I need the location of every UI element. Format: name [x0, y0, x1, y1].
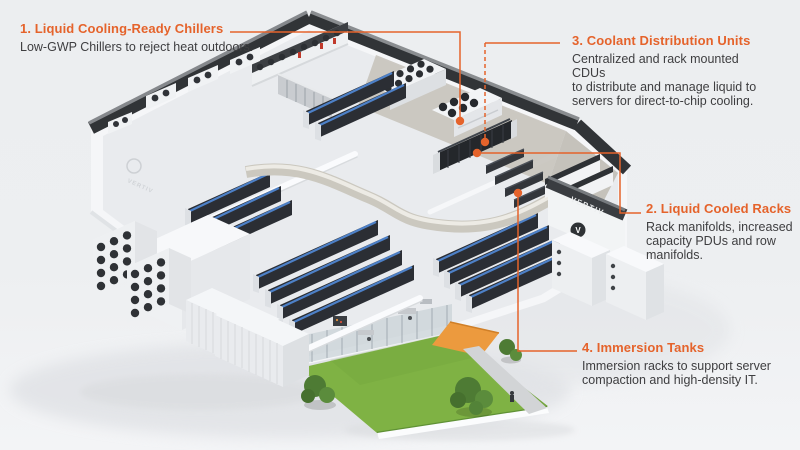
- annotation-immersion-desc: Immersion racks to support server compac…: [582, 359, 777, 387]
- annotation-racks: 2. Liquid Cooled Racks Rack manifolds, i…: [646, 201, 800, 262]
- annotation-immersion: 4. Immersion Tanks Immersion racks to su…: [582, 340, 777, 387]
- person-figure: [510, 391, 514, 395]
- annotation-racks-desc: Rack manifolds, increased capacity PDUs …: [646, 220, 800, 262]
- annotation-immersion-title: 4. Immersion Tanks: [582, 340, 777, 355]
- connector-dot-2: [473, 149, 481, 157]
- brand-logo-letter: V: [575, 226, 581, 235]
- annotation-cdu: 3. Coolant Distribution Units Centralize…: [572, 33, 772, 108]
- annotation-chillers-desc: Low-GWP Chillers to reject heat outdoors…: [20, 40, 280, 54]
- connector-dot-4: [514, 189, 522, 197]
- connector-dot-1: [456, 117, 464, 125]
- connector-dot-3: [481, 138, 489, 146]
- annotation-cdu-desc: Centralized and rack mounted CDUs to dis…: [572, 52, 772, 108]
- annotation-chillers-title: 1. Liquid Cooling-Ready Chillers: [20, 21, 280, 36]
- annotation-racks-title: 2. Liquid Cooled Racks: [646, 201, 800, 216]
- annotation-cdu-title: 3. Coolant Distribution Units: [572, 33, 772, 48]
- annotation-chillers: 1. Liquid Cooling-Ready Chillers Low-GWP…: [20, 21, 280, 54]
- infographic-canvas: VERTIV V: [0, 0, 800, 450]
